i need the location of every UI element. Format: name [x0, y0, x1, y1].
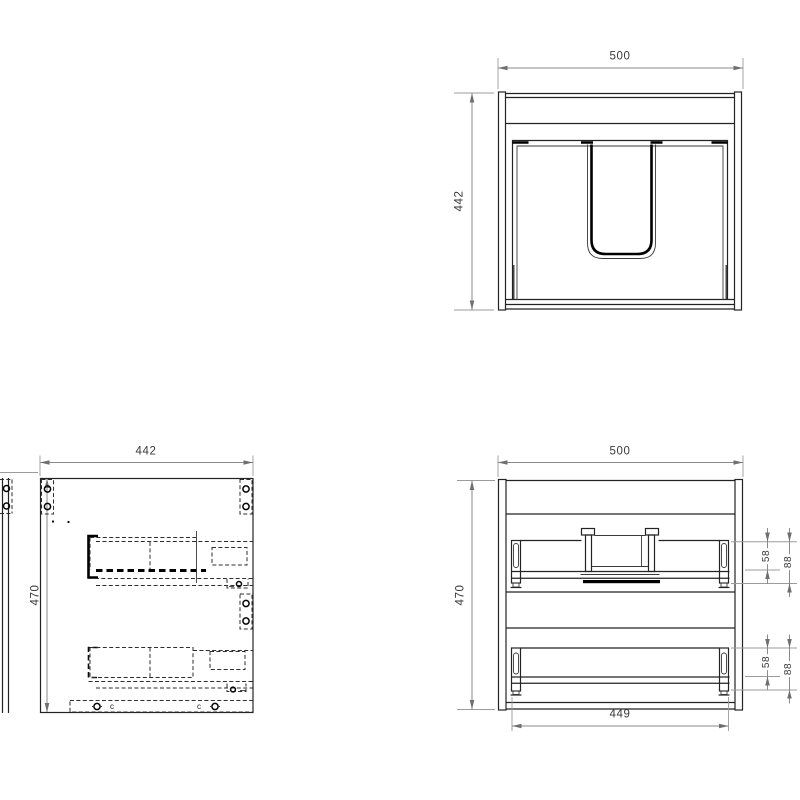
- front-view-height-label: 470: [455, 585, 467, 606]
- front-view-carcass: [499, 480, 743, 711]
- front-view-lower-drawer: [511, 648, 730, 695]
- drawing-geometry: [0, 0, 800, 800]
- front-view-width-dimension: [498, 456, 743, 478]
- top-view-width-label: 500: [610, 51, 631, 63]
- side-view-width-label: 442: [136, 446, 157, 458]
- front-view-lower-rail-offset-label: 58: [762, 654, 772, 670]
- front-view-width-label: 500: [610, 446, 631, 458]
- front-view-inner-width-label: 449: [610, 709, 631, 721]
- side-view-hanger-bracket-mid-right: [240, 594, 252, 629]
- side-view-width-dimension: [40, 456, 253, 477]
- top-view-carcass: [499, 92, 742, 310]
- side-view-screw-marker-right: c: [197, 703, 201, 711]
- front-view-lower-slide-offset-label: 88: [784, 661, 794, 677]
- top-view: [454, 58, 743, 310]
- top-view-depth-label: 442: [454, 191, 466, 212]
- top-view-sink-cutout: [588, 145, 656, 259]
- front-view: [457, 456, 797, 732]
- side-view-pilot-dots: [52, 520, 70, 523]
- side-view-bottom-fixing-strip: [70, 701, 253, 713]
- front-view-upper-slide-offset-label: 88: [784, 554, 794, 570]
- side-view-lower-drawer-runner: [89, 648, 254, 692]
- front-view-upper-drawer: [511, 529, 730, 588]
- side-view-height-label: 470: [30, 585, 42, 606]
- side-view-upper-drawer-runner: [89, 531, 254, 588]
- side-view-screw-marker-left: c: [110, 703, 114, 711]
- front-view-upper-rail-offset-label: 58: [762, 548, 772, 564]
- side-view-hanger-bracket-top-right: [240, 480, 252, 515]
- technical-drawing-canvas: 500 442 442 470 c c 500 470 449 58 88 58…: [0, 0, 800, 800]
